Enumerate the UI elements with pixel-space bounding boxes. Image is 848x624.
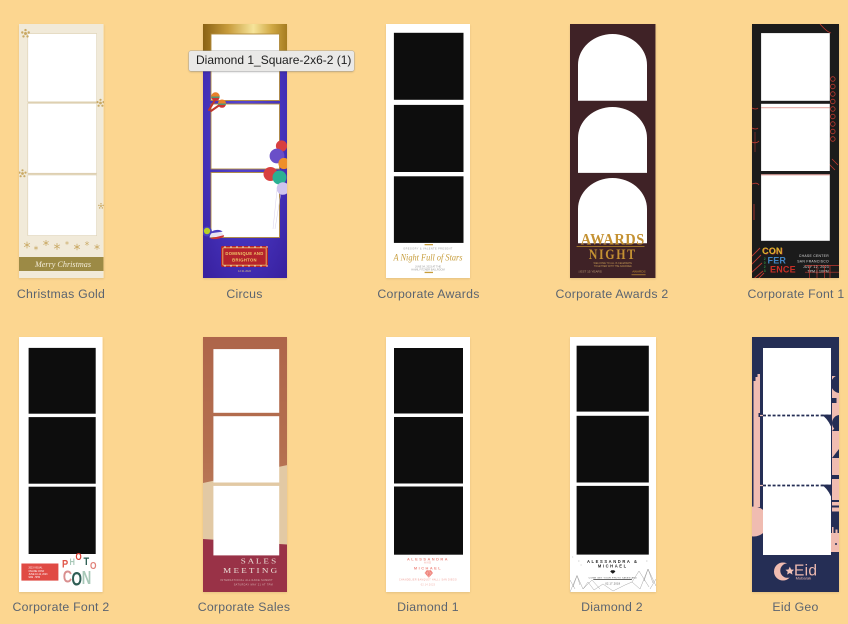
svg-text:MICHAEL: MICHAEL [598, 564, 628, 569]
svg-text:ENCE: ENCE [770, 265, 796, 275]
svg-text:CHANDELIER BANQUET HALL | SAN: CHANDELIER BANQUET HALL | SAN DIEGO [399, 578, 457, 581]
svg-text:BRIGHTON: BRIGHTON [232, 258, 257, 263]
svg-text:COME GET YOUR PHOTO TAKEN AND: COME GET YOUR PHOTO TAKEN AND [589, 576, 637, 579]
svg-text:2023 VISUAL: 2023 VISUAL [29, 567, 44, 570]
svg-text:AWARDS: AWARDS [632, 269, 645, 273]
svg-text:H: H [70, 556, 75, 567]
svg-text:JUNE 10-12, 2023: JUNE 10-12, 2023 [29, 574, 49, 576]
svg-text:N: N [82, 568, 91, 589]
svg-text:T: T [84, 556, 90, 568]
svg-text:S A L E S: S A L E S [240, 557, 276, 565]
svg-text:M E E T I N G: M E E T I N G [223, 567, 277, 575]
svg-text:O: O [71, 568, 82, 590]
svg-text:MICHAEL: MICHAEL [413, 565, 441, 570]
svg-text:02.17.2018: 02.17.2018 [605, 582, 620, 585]
svg-text:Merry Christmas: Merry Christmas [34, 260, 91, 269]
svg-text:12.31.2022: 12.31.2022 [238, 269, 252, 273]
svg-text:JULY 12, 2023: JULY 12, 2023 [803, 265, 829, 269]
svg-text:DOMINIQUE AND: DOMINIQUE AND [225, 251, 263, 256]
svg-text:TOGETHER WITH THE AWARDEE: TOGETHER WITH THE AWARDEE [594, 265, 632, 268]
svg-text:SATURDAY MAY 21 AT 7PM: SATURDAY MAY 21 AT 7PM [233, 583, 272, 586]
svg-text:INTERNATIONAL ALLIANCE SUMMIT: INTERNATIONAL ALLIANCE SUMMIT [220, 579, 273, 582]
svg-text:7PM | 10PM: 7PM | 10PM [807, 270, 829, 274]
svg-text:02.14.2023: 02.14.2023 [420, 584, 435, 586]
svg-text:Mubarak: Mubarak [796, 575, 812, 580]
svg-text:| EST 15 YEARS: | EST 15 YEARS [579, 269, 602, 273]
svg-text:GREGORY & VALENTE PRESENT: GREGORY & VALENTE PRESENT [403, 247, 453, 250]
svg-text:O: O [75, 551, 81, 562]
svg-text:AND: AND [424, 562, 432, 565]
svg-text:HAMIL FITZNER BALLROOM: HAMIL FITZNER BALLROOM [411, 268, 444, 271]
svg-text:9AM - 5PM: 9AM - 5PM [29, 576, 41, 579]
svg-text:3: 3 [764, 269, 766, 273]
svg-text:ONLINE CONF: ONLINE CONF [29, 571, 45, 573]
svg-text:SAN FRANCISCO: SAN FRANCISCO [797, 259, 829, 263]
svg-text:NIGHT: NIGHT [589, 247, 637, 263]
svg-text:CHASE CENTER: CHASE CENTER [799, 254, 829, 258]
svg-text:A Night Full of Stars: A Night Full of Stars [393, 253, 463, 264]
